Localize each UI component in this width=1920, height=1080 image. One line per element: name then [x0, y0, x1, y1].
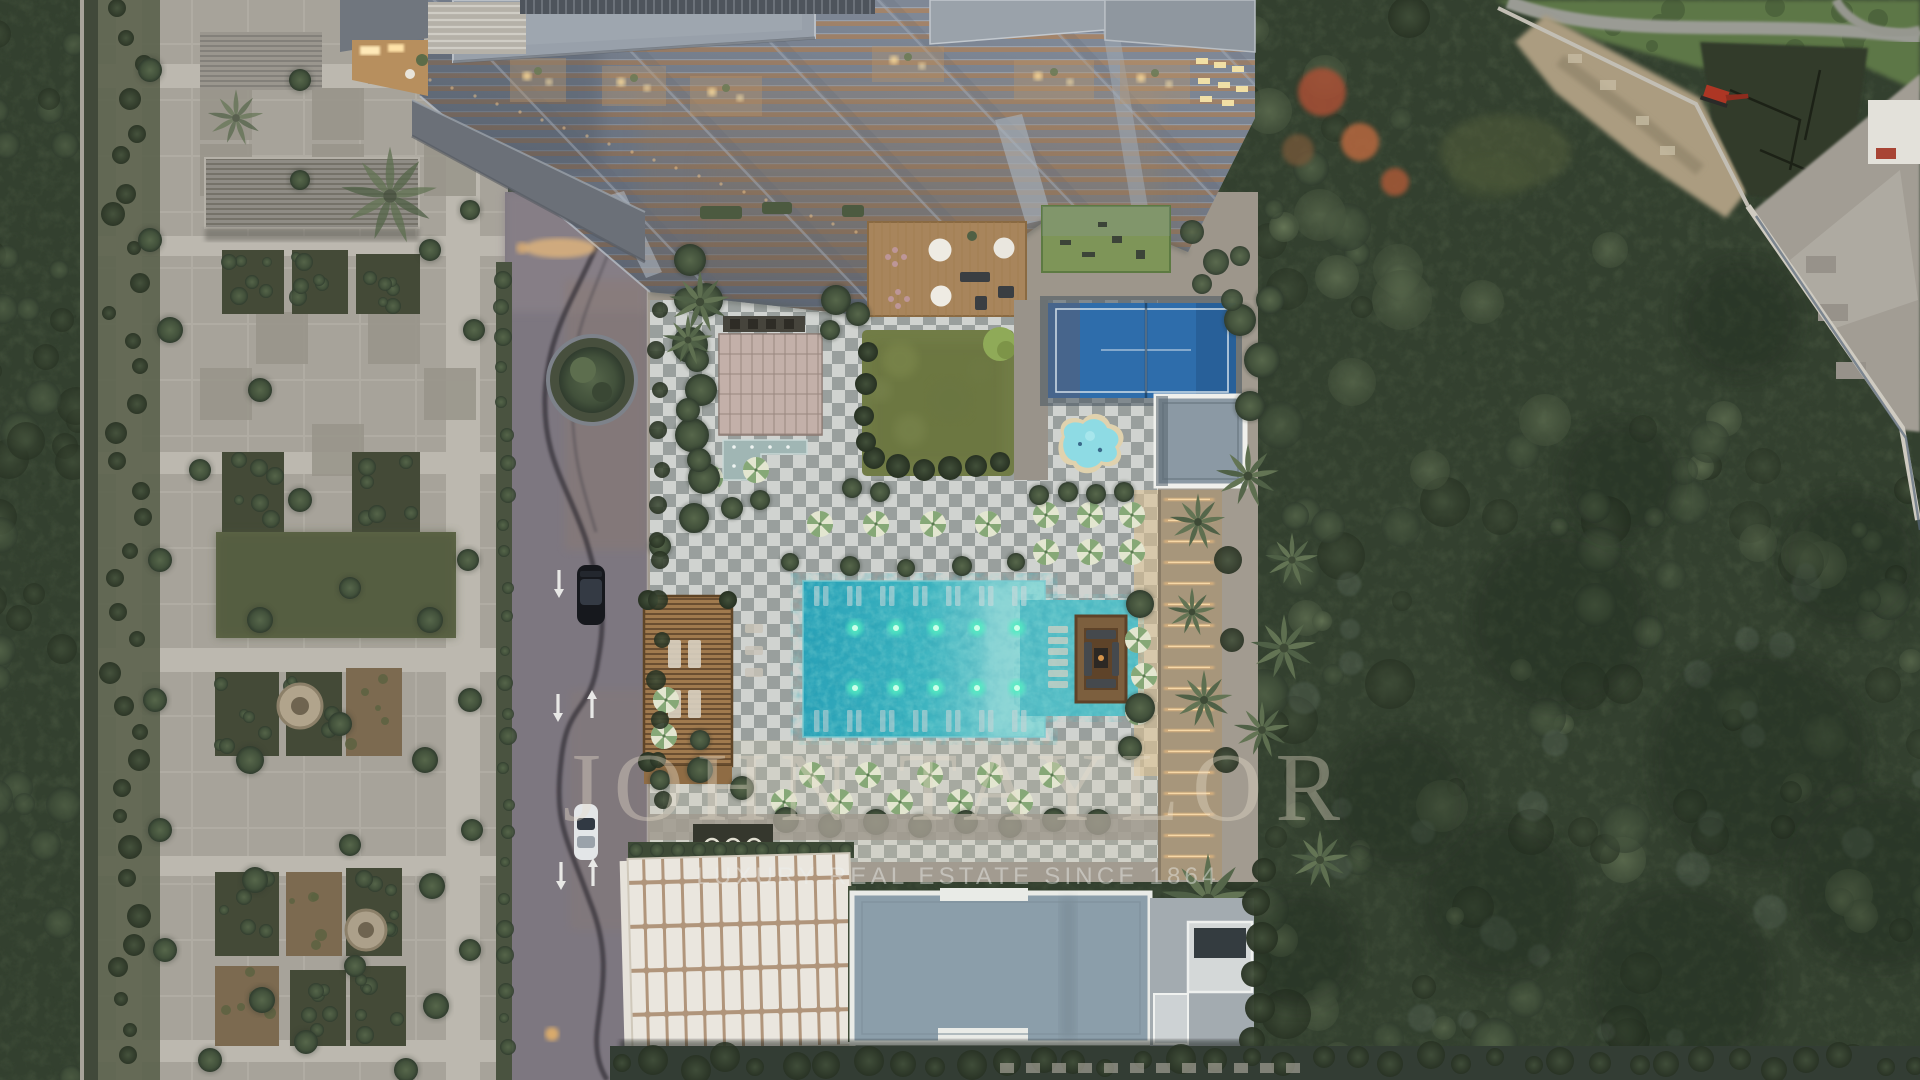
- svg-text:LUXURY REAL ESTATE SINCE 1864: LUXURY REAL ESTATE SINCE 1864: [696, 863, 1219, 890]
- svg-text:JOHN TAYLOR: JOHN TAYLOR: [563, 734, 1353, 841]
